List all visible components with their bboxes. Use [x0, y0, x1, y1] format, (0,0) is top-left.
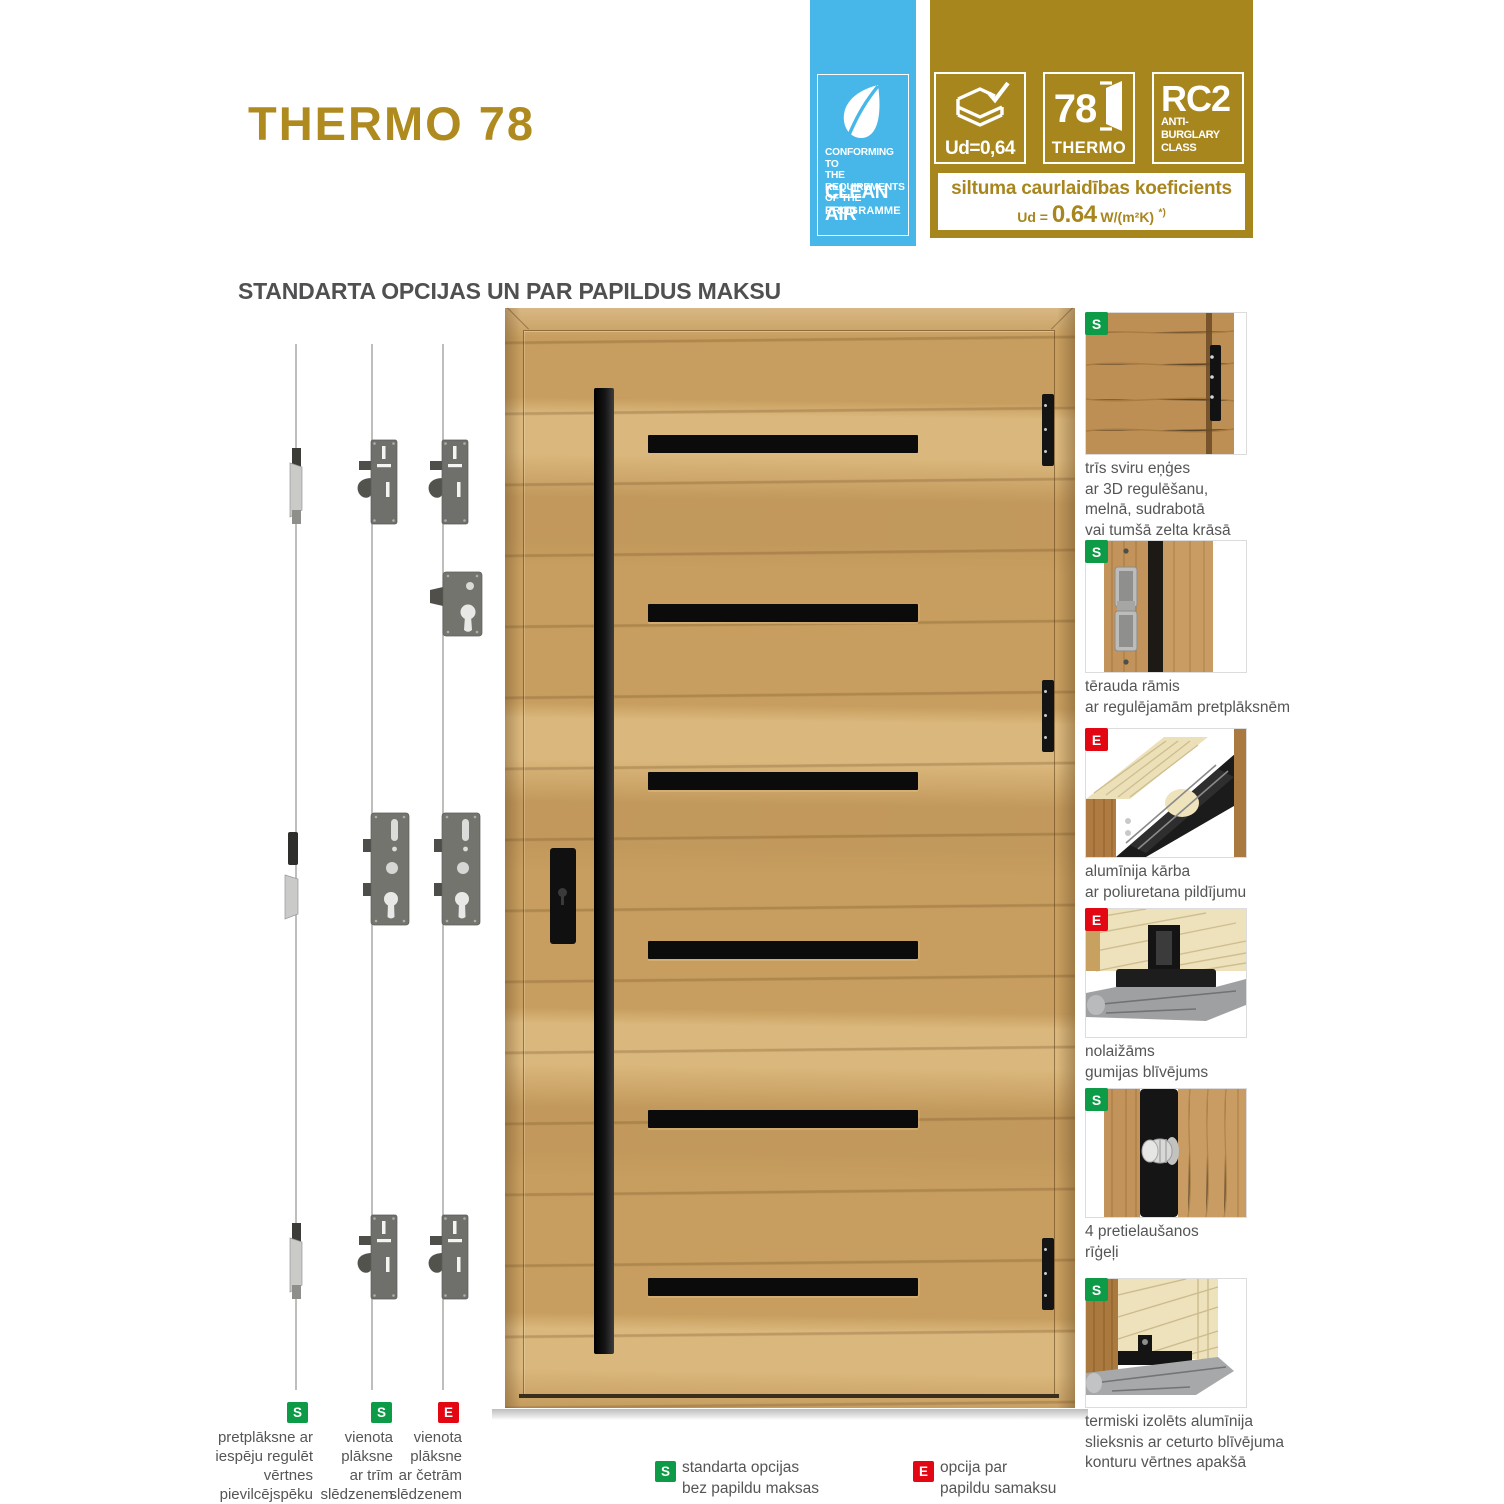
- feature-2-badge: S: [1085, 540, 1108, 563]
- lock-col1-label: pretplāksne ar iespēju regulēt vērtnes p…: [168, 1428, 313, 1504]
- lock-col1-badge: S: [287, 1402, 308, 1423]
- glass-stripe-4: [648, 941, 918, 959]
- strike-part-middle: [288, 832, 298, 865]
- multipoint-lock-illustration: [240, 330, 520, 1410]
- strike-plate-top: [290, 448, 302, 524]
- thermal-badge-group: Ud=0,64 78 THERMO RC2 ANTI-BURGLARY CLAS…: [930, 0, 1253, 238]
- drop-seal-photo: [1085, 908, 1247, 1038]
- security-bolt-photo: [1085, 1088, 1247, 1218]
- strike-plate-bottom: [290, 1223, 302, 1299]
- glass-stripe-6: [648, 1278, 918, 1296]
- glass-stripe-5: [648, 1110, 918, 1128]
- gearbox-right: [434, 813, 480, 925]
- feature-1-badge: S: [1085, 312, 1108, 335]
- door-hinge-bottom: [1042, 1238, 1054, 1310]
- catalog-page: THERMO 78 CONFORMING TO THE REQUIREMENTS…: [0, 0, 1504, 1504]
- door-icon: [1098, 80, 1124, 137]
- strike-plate-middle: [285, 875, 298, 919]
- thermal-coefficient-strip: siltuma caurlaidības koeficients Ud = 0.…: [938, 173, 1245, 230]
- hinge-photo: [1085, 312, 1247, 455]
- feature-4-badge: E: [1085, 908, 1108, 931]
- legend-extra-badge: E: [913, 1461, 934, 1482]
- page-title: THERMO 78: [248, 96, 535, 151]
- rc2-line2: CLASS: [1161, 142, 1242, 155]
- ud-value-box: Ud=0,64: [934, 72, 1026, 164]
- glass-stripe-3: [648, 772, 918, 790]
- thermo-78-box: 78 THERMO: [1043, 72, 1135, 164]
- coefficient-value-line: Ud = 0.64 W/(m²K) *): [938, 201, 1245, 229]
- layers-check-icon: [936, 81, 1024, 136]
- lock-col2-badge: S: [371, 1402, 392, 1423]
- thermo-label: THERMO: [1045, 139, 1133, 158]
- hook-lock-bottom-right: [429, 1215, 468, 1299]
- clean-air-last-text: PROGRAMME: [825, 205, 901, 217]
- keyhole-slot: [561, 895, 564, 905]
- door-mitre-left: [507, 308, 529, 330]
- door-photo: [505, 308, 1075, 1408]
- rc2-line1: ANTI-BURGLARY: [1161, 116, 1242, 142]
- rc2-box: RC2 ANTI-BURGLARY CLASS: [1152, 72, 1244, 164]
- section-heading: STANDARTA OPCIJAS UN PAR PAPILDUS MAKSU: [238, 278, 781, 305]
- cylinder-escutcheon: [550, 848, 576, 944]
- threshold-photo: [1085, 1278, 1247, 1408]
- feature-4-caption: nolaižāms gumijas blīvējums: [1085, 1042, 1315, 1083]
- clean-air-big-text: CLEAN AIR: [825, 182, 908, 226]
- aluminium-frame-photo: [1085, 728, 1247, 858]
- door-shadow: [492, 1409, 1088, 1420]
- coefficient-prefix: Ud =: [1017, 209, 1052, 225]
- coefficient-value: 0.64: [1052, 201, 1097, 228]
- clean-air-inner-box: CONFORMING TO THE REQUIREMENTS OF THE CL…: [817, 74, 909, 236]
- glass-stripe-2: [648, 604, 918, 622]
- door-hinge-middle: [1042, 680, 1054, 752]
- thermo-78-number: 78: [1054, 89, 1097, 129]
- door-bottom-gap: [519, 1394, 1059, 1398]
- feature-3-badge: E: [1085, 728, 1108, 751]
- coefficient-unit: W/(m²K): [1097, 209, 1155, 225]
- hook-lock-top-middle: [358, 440, 397, 524]
- gearbox-middle: [363, 813, 409, 925]
- lock-col3-label: vienota plāksne ar četrām slēdzenem: [372, 1428, 462, 1504]
- lock-col3-badge: E: [438, 1402, 459, 1423]
- hook-lock-top-right: [429, 440, 468, 524]
- clean-air-badge: CONFORMING TO THE REQUIREMENTS OF THE CL…: [810, 0, 916, 246]
- ud-value-label: Ud=0,64: [936, 138, 1024, 160]
- steel-frame-photo: [1085, 540, 1247, 673]
- feature-6-badge: S: [1085, 1278, 1108, 1301]
- door-pull-handle: [594, 388, 614, 1354]
- feature-1-caption: trīs sviru eņģes ar 3D regulēšanu, melnā…: [1085, 459, 1315, 541]
- rc2-title: RC2: [1161, 82, 1242, 116]
- glass-stripe-1: [648, 435, 918, 453]
- main-deadbolt-lock: [430, 572, 482, 636]
- feature-6-caption: termiski izolēts alumīnija slieksnis ar …: [1085, 1412, 1315, 1474]
- lock-rods: [296, 344, 443, 1390]
- door-hinge-top: [1042, 394, 1054, 466]
- legend-standard-badge: S: [655, 1461, 676, 1482]
- legend-extra-text: opcija par papildu samaksu: [940, 1457, 1056, 1499]
- coefficient-title: siltuma caurlaidības koeficients: [938, 178, 1245, 200]
- feature-5-badge: S: [1085, 1088, 1108, 1111]
- feature-5-caption: 4 pretielaušanos rīģeļi: [1085, 1222, 1315, 1263]
- hook-lock-bottom-middle: [358, 1215, 397, 1299]
- coefficient-footnote: *): [1159, 208, 1166, 219]
- feature-3-caption: alumīnija kārba ar poliuretana pildījumu: [1085, 862, 1315, 903]
- feature-2-caption: tērauda rāmis ar regulējamām pretplāksnē…: [1085, 677, 1315, 718]
- door-mitre-right: [1051, 308, 1073, 330]
- leaf-icon: [838, 83, 888, 146]
- legend-standard-text: standarta opcijas bez papildu maksas: [682, 1457, 819, 1499]
